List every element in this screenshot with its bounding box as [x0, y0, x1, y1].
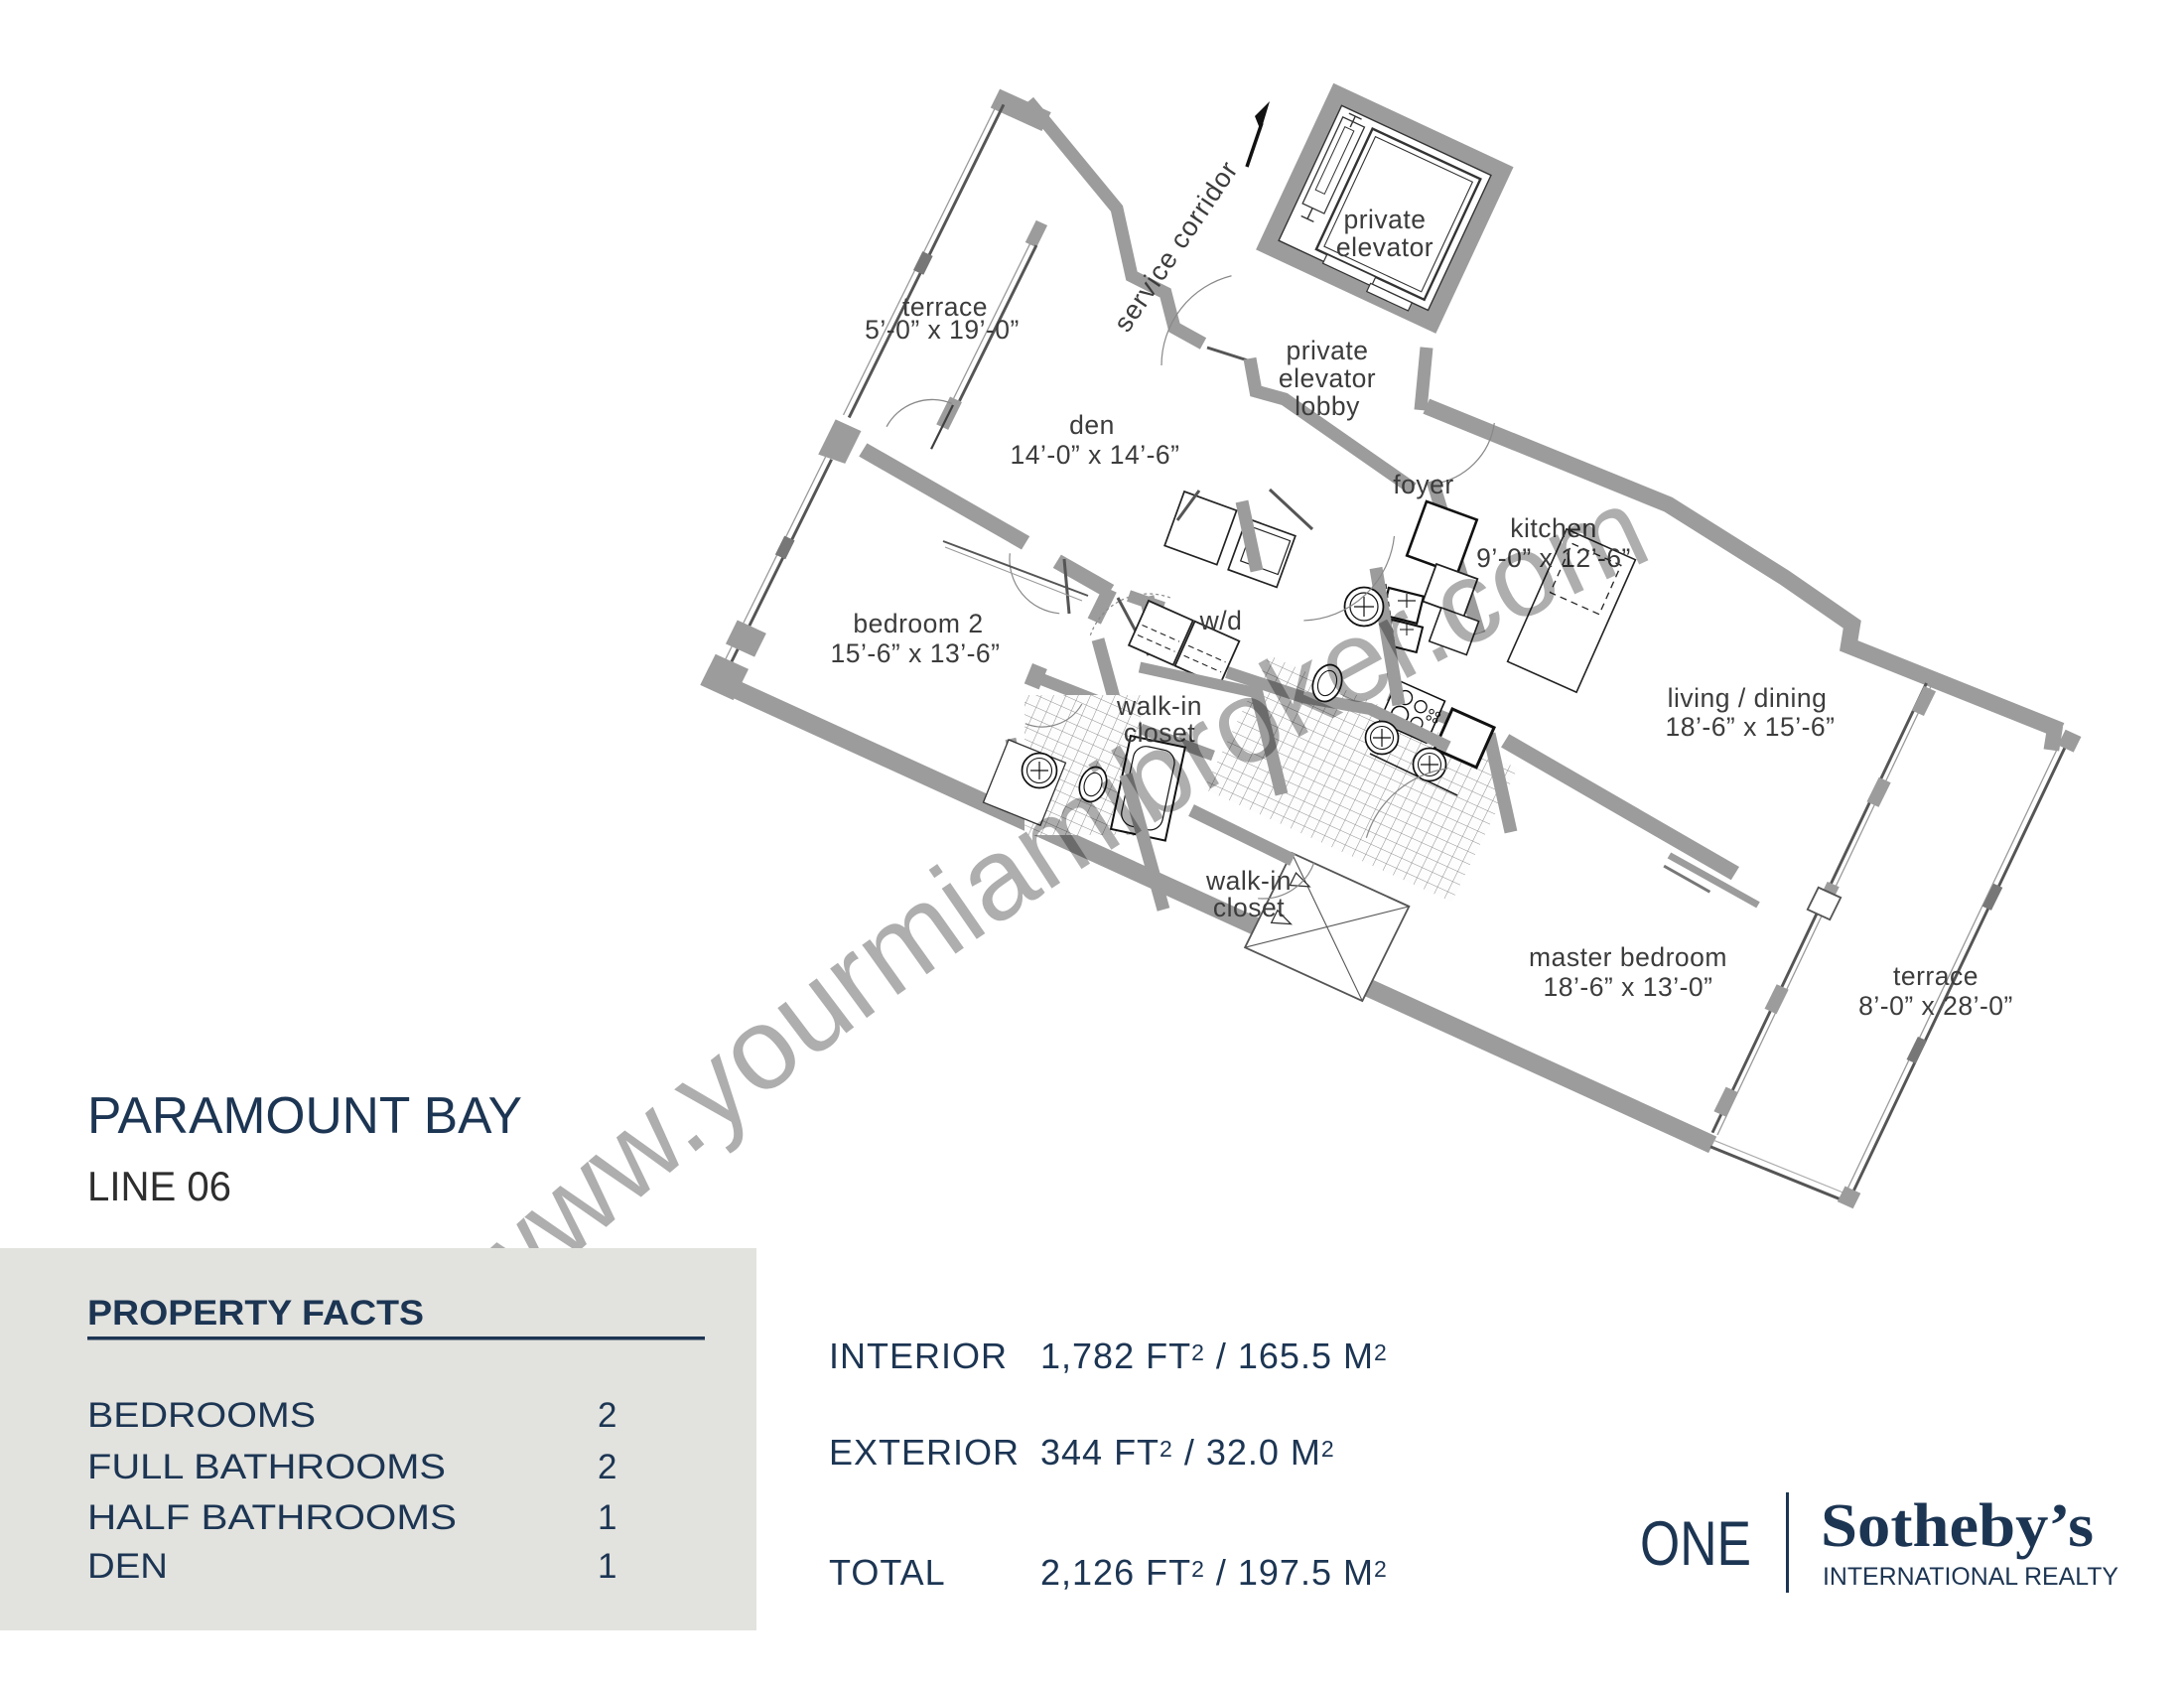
svg-text:2,126 FT2 / 197.5 M2: 2,126 FT2 / 197.5 M2: [1040, 1552, 1388, 1593]
svg-text:TOTAL: TOTAL: [829, 1552, 946, 1593]
svg-text:2: 2: [598, 1448, 617, 1486]
svg-text:elevator: elevator: [1279, 363, 1376, 393]
svg-text:walk-in: walk-in: [1205, 866, 1292, 896]
svg-text:LINE 06: LINE 06: [87, 1163, 231, 1209]
svg-text:terrace: terrace: [1893, 961, 1979, 991]
svg-text:living / dining: living / dining: [1668, 683, 1828, 713]
svg-text:PARAMOUNT BAY: PARAMOUNT BAY: [87, 1087, 522, 1145]
svg-text:344 FT2 / 32.0 M2: 344 FT2 / 32.0 M2: [1040, 1432, 1335, 1473]
svg-text:14’-0” x 14’-6”: 14’-0” x 14’-6”: [1011, 440, 1180, 470]
svg-text:EXTERIOR: EXTERIOR: [829, 1432, 1020, 1473]
svg-text:5’-0” x 19’-0”: 5’-0” x 19’-0”: [865, 315, 1020, 345]
svg-text:PROPERTY FACTS: PROPERTY FACTS: [87, 1294, 424, 1333]
svg-text:INTERIOR: INTERIOR: [829, 1336, 1008, 1376]
svg-text:w/d: w/d: [1199, 606, 1243, 635]
svg-text:master bedroom: master bedroom: [1529, 942, 1727, 972]
svg-text:private: private: [1286, 336, 1368, 365]
svg-text:foyer: foyer: [1393, 470, 1453, 499]
svg-text:bedroom 2: bedroom 2: [853, 609, 983, 638]
svg-text:den: den: [1069, 410, 1115, 440]
svg-text:18’-6” x 15’-6”: 18’-6” x 15’-6”: [1666, 712, 1836, 742]
svg-text:18’-6” x 13’-0”: 18’-6” x 13’-0”: [1544, 972, 1713, 1002]
svg-text:1: 1: [598, 1547, 617, 1586]
svg-text:ONE: ONE: [1640, 1509, 1751, 1579]
svg-text:closet: closet: [1213, 893, 1285, 922]
svg-text:BEDROOMS: BEDROOMS: [87, 1396, 316, 1435]
svg-text:FULL BATHROOMS: FULL BATHROOMS: [87, 1448, 446, 1486]
svg-text:1: 1: [598, 1498, 617, 1537]
svg-text:elevator: elevator: [1336, 232, 1433, 262]
svg-text:lobby: lobby: [1295, 391, 1360, 421]
svg-text:2: 2: [598, 1396, 617, 1435]
svg-text:15’-6” x 13’-6”: 15’-6” x 13’-6”: [831, 638, 1001, 668]
svg-text:Sotheby’s: Sotheby’s: [1821, 1492, 2094, 1560]
svg-text:INTERNATIONAL REALTY: INTERNATIONAL REALTY: [1823, 1563, 2118, 1591]
svg-text:private: private: [1343, 205, 1426, 234]
svg-text:www.yourmiamibroker.com: www.yourmiamibroker.com: [432, 462, 1666, 1338]
svg-text:DEN: DEN: [87, 1547, 168, 1586]
svg-text:1,782 FT2 / 165.5 M2: 1,782 FT2 / 165.5 M2: [1040, 1336, 1388, 1376]
svg-text:HALF BATHROOMS: HALF BATHROOMS: [87, 1498, 457, 1537]
svg-text:8’-0” x 28’-0”: 8’-0” x 28’-0”: [1858, 991, 2013, 1021]
